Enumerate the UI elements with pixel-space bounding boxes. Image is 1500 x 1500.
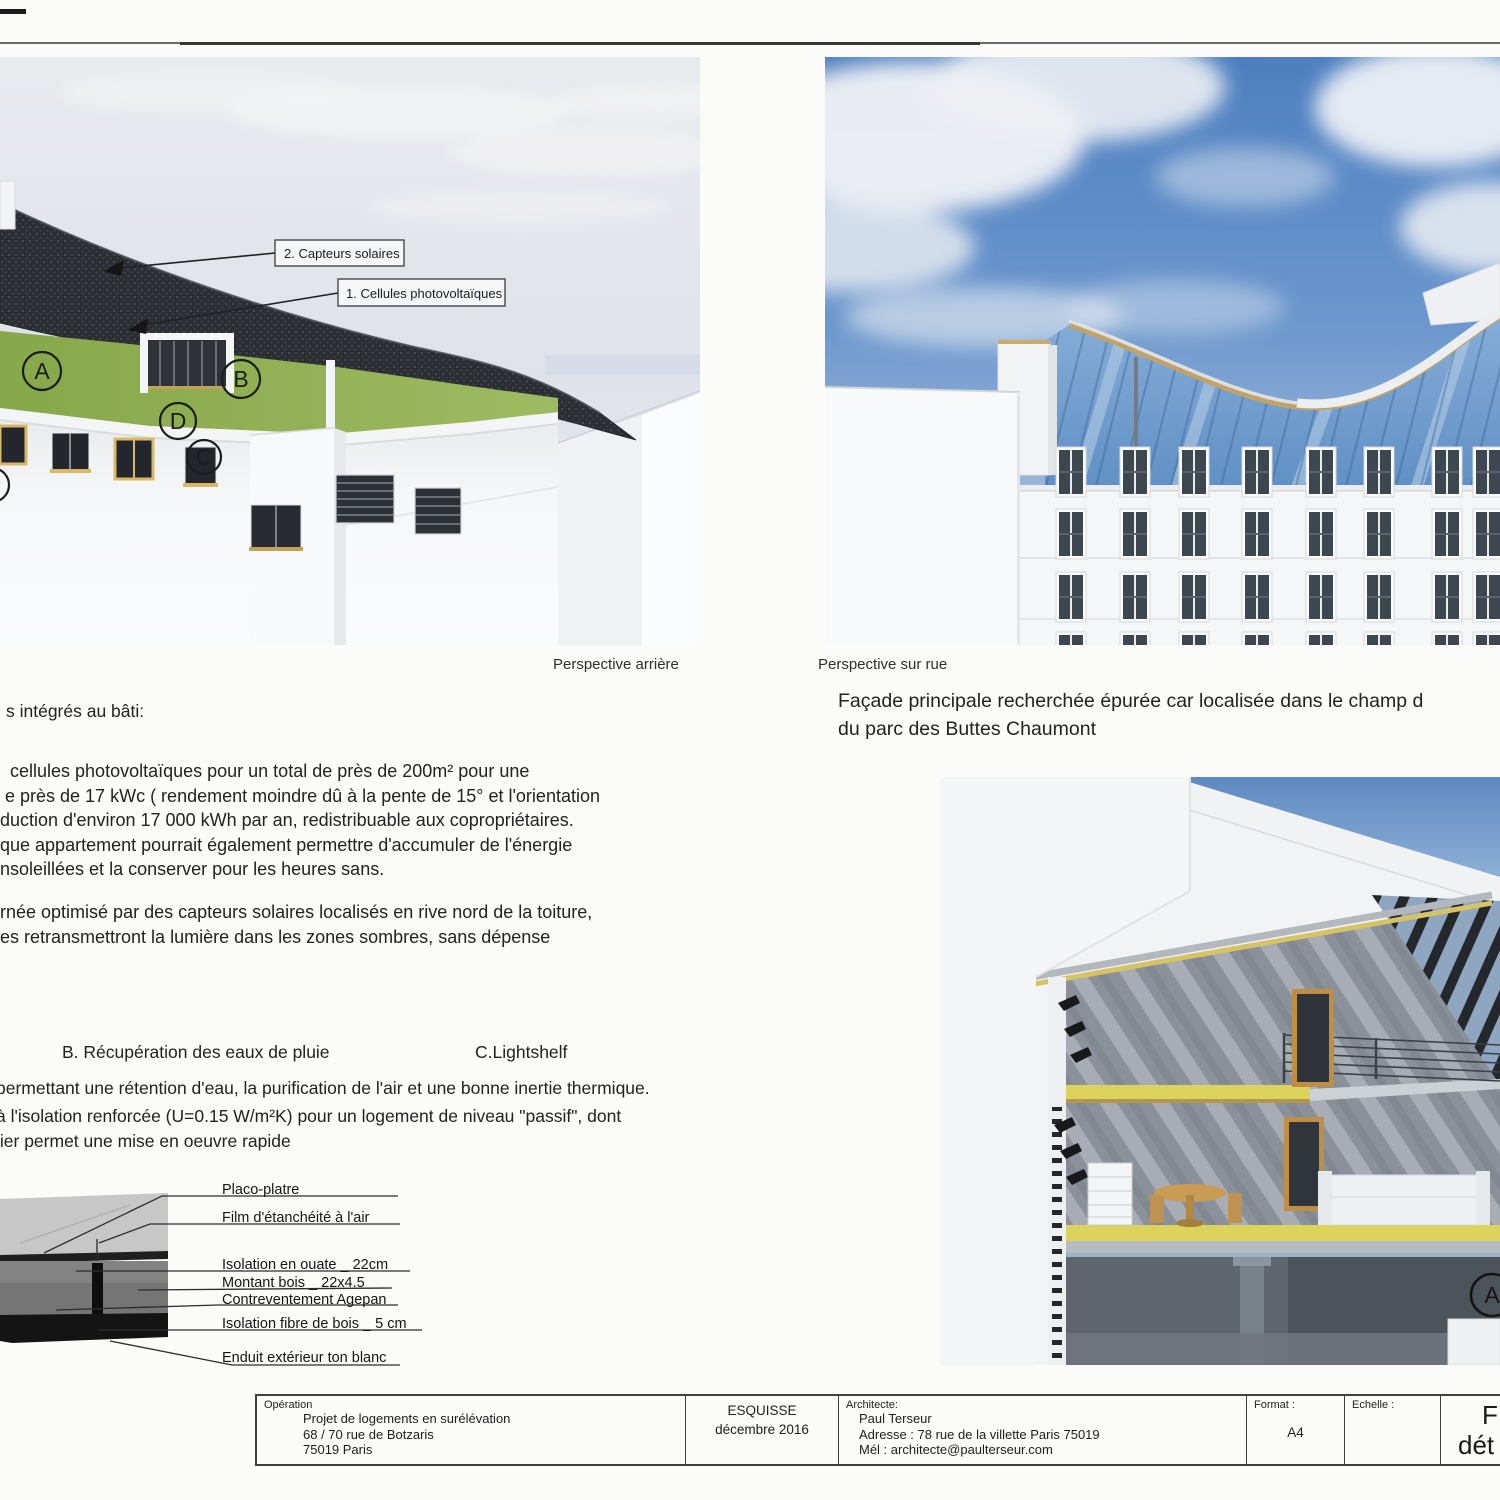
- side-wall-edge: [1017, 392, 1020, 645]
- lower-door: [1289, 1122, 1319, 1206]
- lower-slab-concrete: [1066, 1241, 1500, 1253]
- insulation-top: [0, 1261, 168, 1283]
- par3-line3: lier permet une mise en oeuvre rapide: [0, 1131, 291, 1152]
- phase-label: ESQUISSE: [686, 1403, 838, 1419]
- side-wall: [825, 387, 1020, 645]
- facade-note-line1: Façade principale recherchée épurée car …: [838, 687, 1423, 715]
- upper-slab: [1066, 1085, 1310, 1100]
- titleblock-operation: Opération Projet de logements en surélév…: [257, 1396, 686, 1464]
- stair-block-side: [334, 428, 346, 645]
- phase-date: décembre 2016: [686, 1422, 838, 1438]
- format-value: A4: [1247, 1425, 1344, 1441]
- callout-placo: Placo-platre: [222, 1183, 299, 1198]
- titleblock-phase: ESQUISSE décembre 2016: [686, 1396, 839, 1464]
- callout-capteurs-label: 2. Capteurs solaires: [284, 246, 400, 261]
- par1-line4: que appartement pourrait également perme…: [0, 833, 600, 858]
- sheet-title-line2: dét: [1441, 1430, 1500, 1460]
- architect-label: Architecte:: [839, 1396, 1246, 1411]
- callout-cellules-label: 1. Cellules photovoltaïques: [346, 286, 503, 301]
- caption-perspective-rue: Perspective sur rue: [818, 656, 947, 673]
- heading-recuperation: B. Récupération des eaux de pluie: [62, 1042, 330, 1063]
- par1-line5: nsoleillées et la conserver pour les heu…: [0, 857, 600, 882]
- top-corner-tick: [0, 9, 26, 14]
- paragraph-photovoltaic: cellules photovoltaïques pour un total d…: [0, 759, 600, 882]
- pillar-cap: [1233, 1257, 1271, 1266]
- top-rule-dark: [180, 42, 980, 45]
- marker-a: A: [34, 358, 50, 384]
- insulation-dashes: [1048, 1107, 1066, 1365]
- chimney: [0, 181, 15, 229]
- courtyard-sill: [146, 386, 228, 389]
- titleblock-format: Format : A4: [1247, 1396, 1345, 1464]
- upper-slab-edge: [1066, 1099, 1310, 1103]
- intro-line: s intégrés au bâti:: [6, 701, 144, 722]
- marker-c: C: [196, 444, 213, 470]
- caption-perspective-arriere: Perspective arrière: [553, 656, 679, 673]
- par1-line3: duction d'environ 17 000 kWh par an, red…: [0, 808, 600, 833]
- operation-label: Opération: [257, 1396, 685, 1411]
- callout-contreventement: Contreventement Agepan: [222, 1292, 386, 1308]
- titleblock-scale: Echelle :: [1345, 1396, 1441, 1464]
- plasterboard-layer: [0, 1193, 168, 1257]
- architect-email: Mél : architecte@paulterseur.com: [839, 1442, 1246, 1458]
- lower-slab: [1066, 1225, 1500, 1241]
- callout-montant: Montant bois _ 22x4.5: [222, 1275, 365, 1291]
- render-perspective-rue: [825, 57, 1500, 645]
- architect-name: Paul Terseur: [839, 1411, 1246, 1427]
- detail-drawing: Placo-platre Film d'étanchéité à l'air I…: [0, 1183, 430, 1375]
- section-marker-a: A: [1484, 1282, 1500, 1308]
- titleblock-sheet-title: F dét: [1441, 1396, 1500, 1464]
- wall-right-near: [558, 415, 642, 645]
- paragraph-capteurs: rnée optimisé par des capteurs solaires …: [0, 900, 592, 949]
- marker-b: B: [233, 366, 248, 392]
- roof-box-trim: [998, 340, 1050, 344]
- callout-enduit: Enduit extérieur ton blanc: [222, 1350, 386, 1366]
- render-section-detail: A: [940, 777, 1500, 1365]
- titleblock-architect: Architecte: Paul Terseur Adresse : 78 ru…: [839, 1396, 1247, 1464]
- render-perspective-arriere: A B D C 2. Capteurs solaires 1. Cellules…: [0, 57, 700, 645]
- detail-callouts: Placo-platre Film d'étanchéité à l'air I…: [222, 1183, 407, 1366]
- scale-label: Echelle :: [1345, 1396, 1440, 1411]
- wall-right-far: [642, 393, 700, 645]
- fiber-layer: [0, 1313, 168, 1343]
- par3-line2: à l'isolation renforcée (U=0.15 W/m²K) p…: [0, 1106, 621, 1127]
- format-label: Format :: [1247, 1396, 1344, 1411]
- par2-line2: es retransmettront la lumière dans les z…: [0, 925, 592, 950]
- facade-note: Façade principale recherchée épurée car …: [838, 687, 1423, 743]
- par1-line1: cellules photovoltaïques pour un total d…: [0, 759, 600, 784]
- callout-film: Film d'étanchéité à l'air: [222, 1210, 370, 1226]
- title-block: Opération Projet de logements en surélév…: [255, 1394, 1500, 1466]
- lower-slab-line: [1066, 1253, 1500, 1257]
- callout-fibre: Isolation fibre de bois _ 5 cm: [222, 1316, 407, 1332]
- heading-lightshelf: C.Lightshelf: [475, 1042, 567, 1063]
- upper-door: [1297, 994, 1329, 1082]
- par3-line1: permettant une rétention d'eau, la purif…: [0, 1078, 650, 1099]
- horizon-haze: [545, 355, 700, 375]
- facade-note-line2: du parc des Buttes Chaumont: [838, 715, 1423, 743]
- sheet-title-line1: F: [1441, 1396, 1500, 1430]
- par2-line1: rnée optimisé par des capteurs solaires …: [0, 900, 592, 925]
- parking-floor: [1066, 1333, 1500, 1365]
- architecture-sheet: { "document": { "captions": { "left": "P…: [0, 0, 1500, 1500]
- par1-line2: e près de 17 kWc ( rendement moindre dû …: [0, 784, 600, 809]
- operation-line1: Projet de logements en surélévation: [257, 1411, 685, 1427]
- operation-line3: 75019 Paris: [257, 1442, 685, 1458]
- callout-ouate: Isolation en ouate _ 22cm: [222, 1257, 388, 1273]
- marker-d: D: [170, 408, 187, 434]
- operation-line2: 68 / 70 rue de Botzaris: [257, 1427, 685, 1443]
- architect-address: Adresse : 78 rue de la villette Paris 75…: [839, 1427, 1246, 1443]
